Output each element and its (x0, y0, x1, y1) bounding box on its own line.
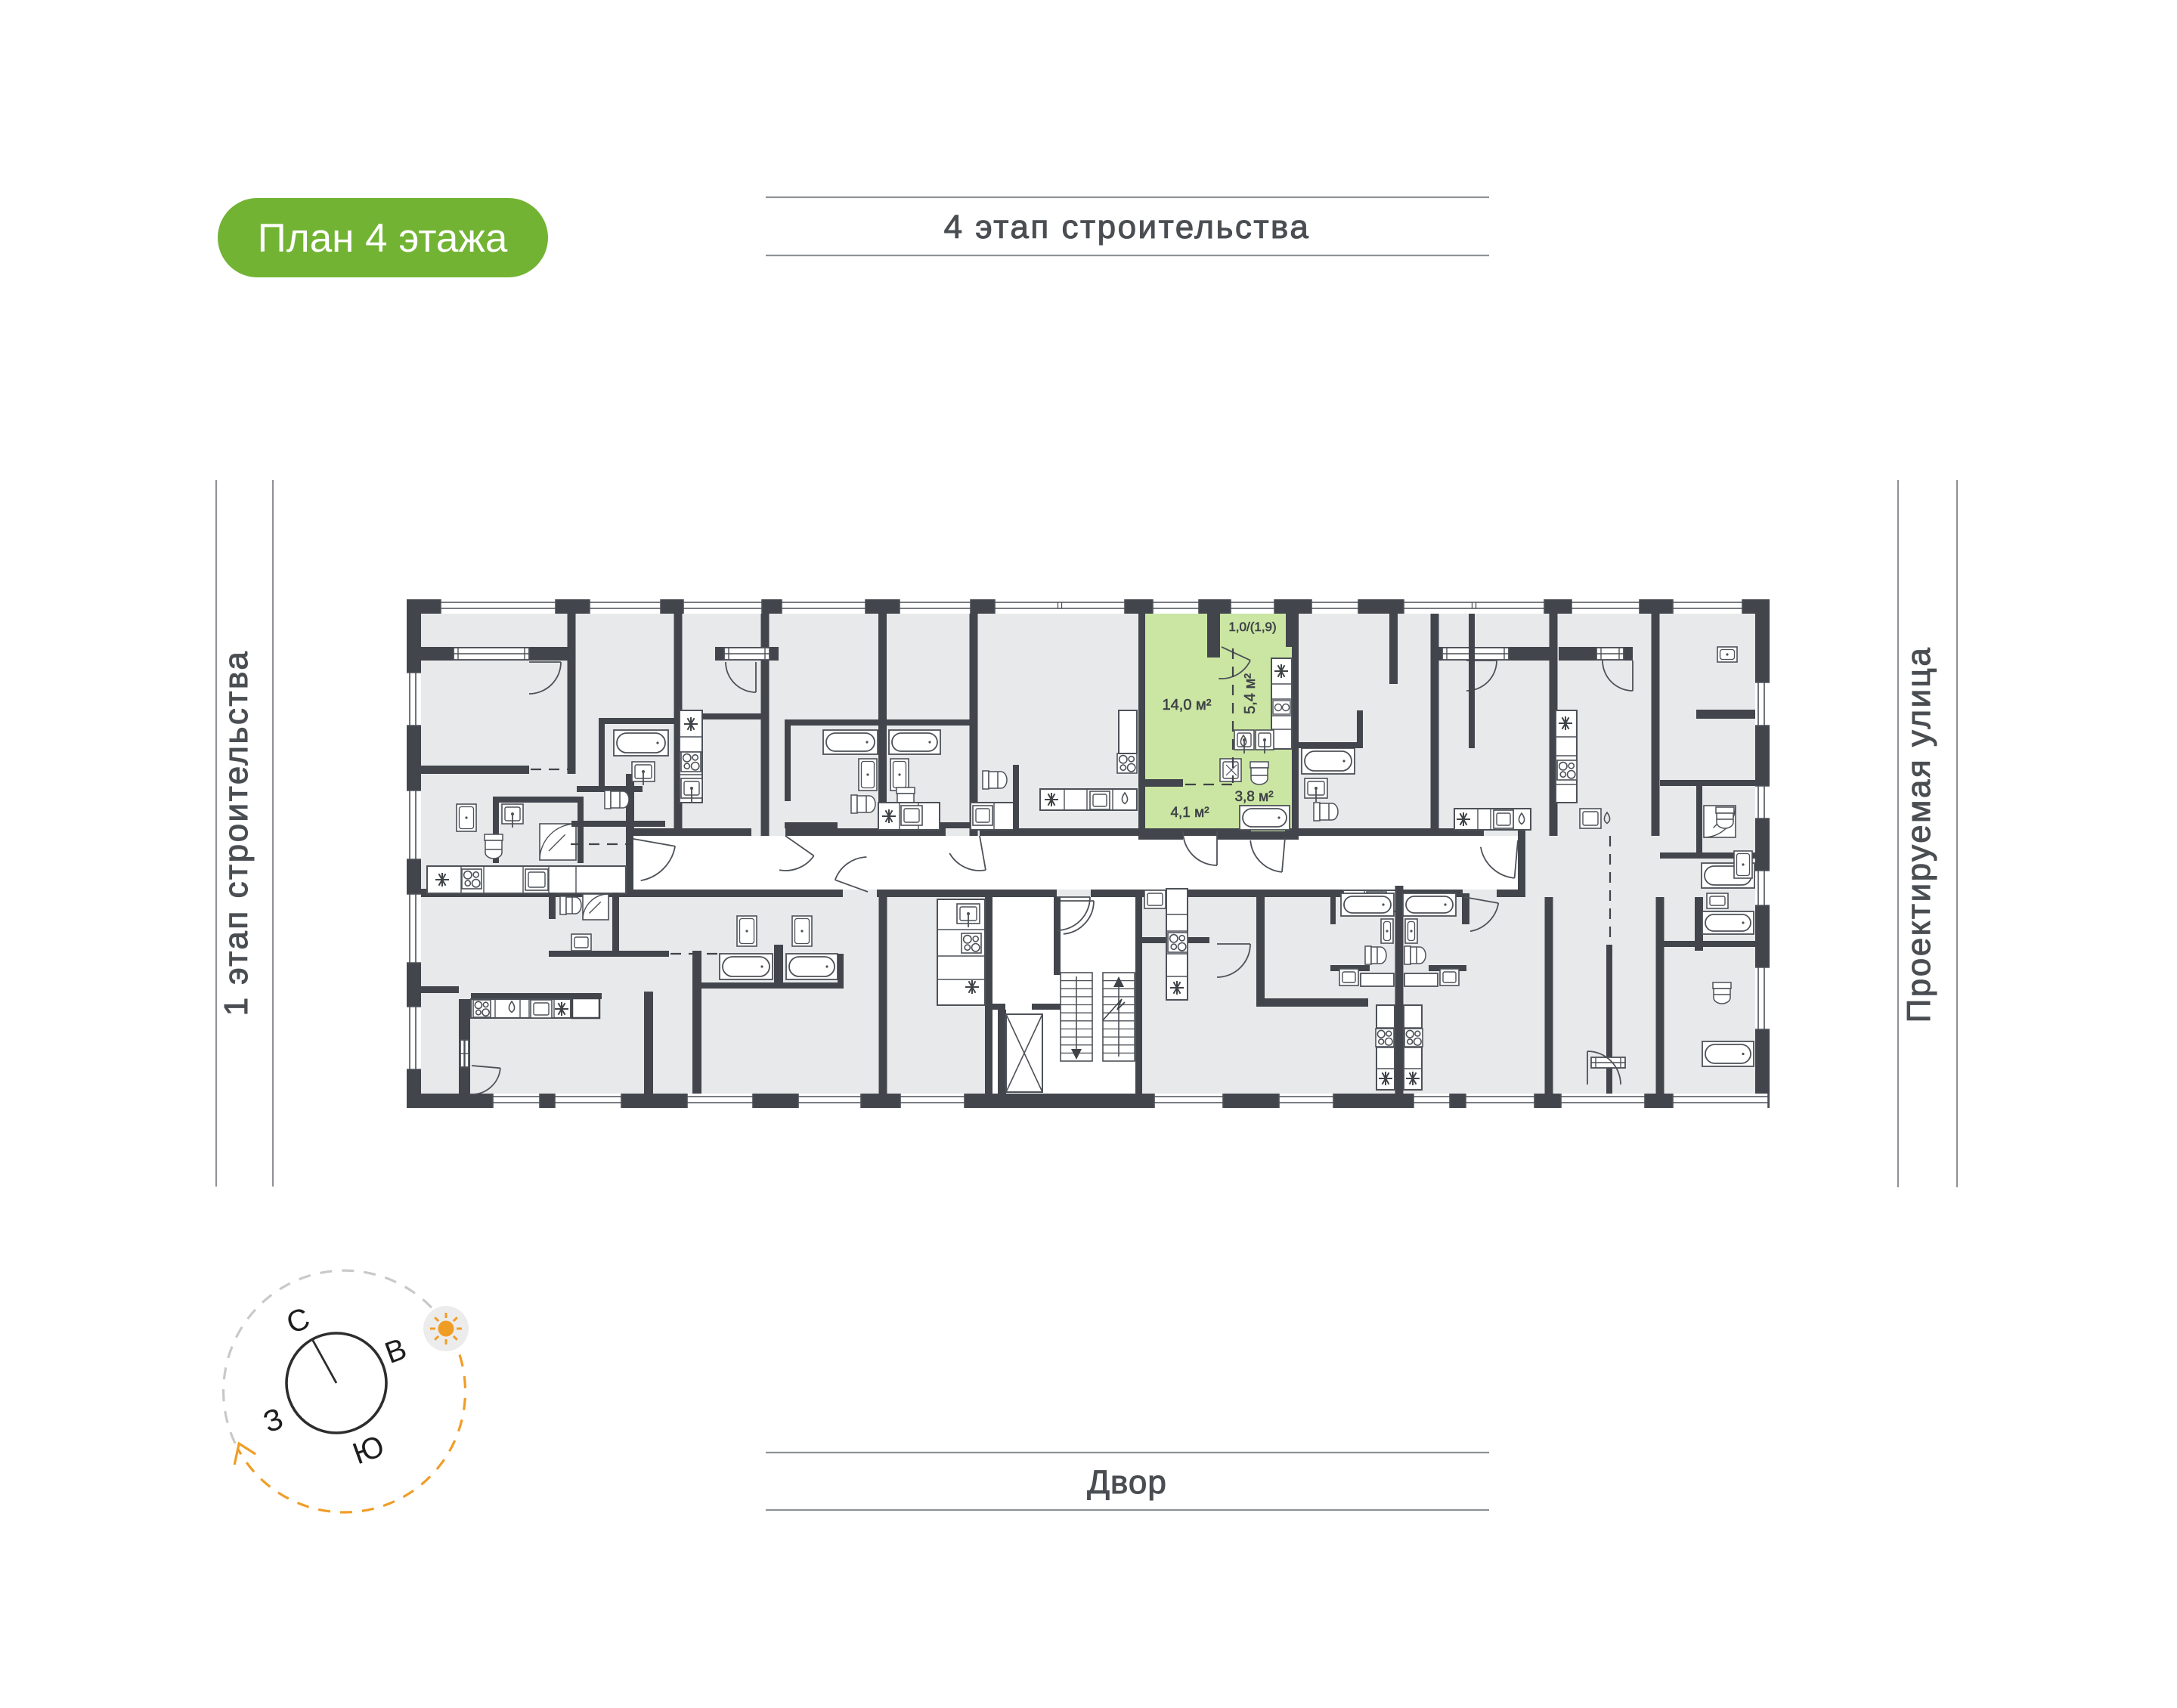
svg-text:14,0 м²: 14,0 м² (1163, 697, 1212, 713)
svg-text:1,0/(1,9): 1,0/(1,9) (1228, 620, 1276, 634)
svg-text:1 этап строительства: 1 этап строительства (218, 650, 255, 1016)
svg-text:3,8 м²: 3,8 м² (1234, 789, 1273, 805)
svg-text:4 этап строительства: 4 этап строительства (944, 209, 1311, 246)
svg-text:Двор: Двор (1087, 1464, 1167, 1501)
svg-text:Проектируемая улица: Проектируемая улица (1900, 646, 1937, 1023)
svg-text:5,4 м²: 5,4 м² (1242, 673, 1259, 714)
svg-text:План 4 этажа: План 4 этажа (258, 216, 508, 261)
svg-text:4,1 м²: 4,1 м² (1170, 805, 1209, 821)
